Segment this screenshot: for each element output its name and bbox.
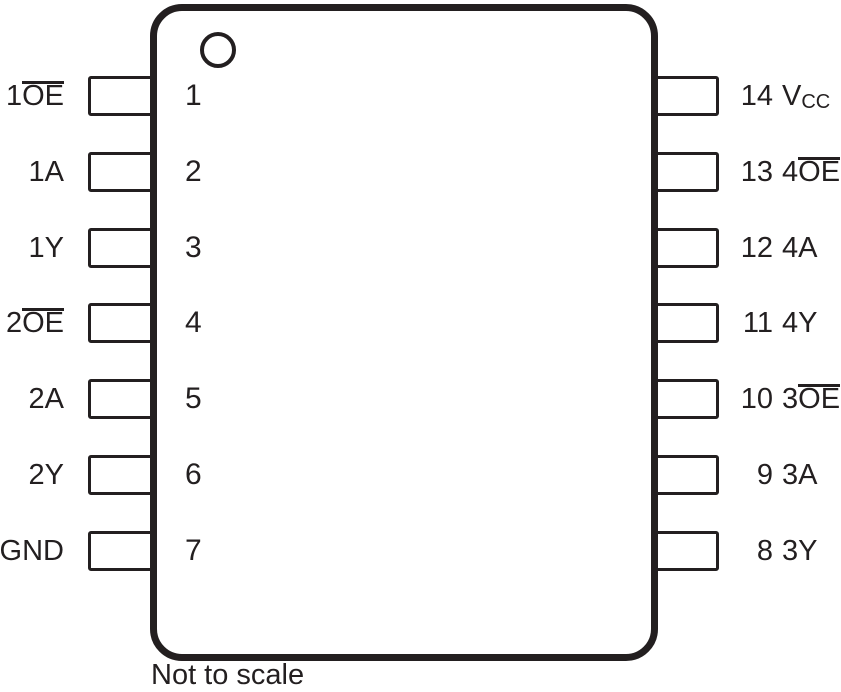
- pin-number-12: 12: [737, 228, 773, 268]
- pin-lead-11: [653, 303, 719, 343]
- pin-name-2oe: 2OE: [0, 303, 64, 343]
- pin-number-14: 14: [737, 76, 773, 116]
- pin-name-3y: 3Y: [782, 535, 817, 567]
- pin-name-overline: OE: [798, 156, 840, 188]
- pin-name-base: 4Y: [782, 307, 817, 339]
- pin-number-8: 8: [737, 531, 773, 571]
- pin-name-overline: OE: [22, 307, 64, 339]
- pin-name-1a: 1A: [0, 152, 64, 192]
- pin-lead-10: [653, 379, 719, 419]
- pin-name-4oe: 4OE: [782, 156, 840, 188]
- pin-label-8-3y: 83Y: [737, 531, 817, 571]
- pin-number-11: 11: [737, 303, 773, 343]
- pin-name-subscript: CC: [801, 91, 830, 113]
- pin-number-4: 4: [185, 303, 202, 343]
- pin-name-overline: OE: [22, 80, 64, 112]
- pin-lead-6: [88, 455, 153, 495]
- pin-name-base: 4A: [782, 232, 817, 264]
- pin-name-base: V: [782, 80, 801, 112]
- pin-name-base: 2: [6, 307, 22, 339]
- pin-lead-14: [653, 76, 719, 116]
- pin-lead-4: [88, 303, 153, 343]
- pin-lead-13: [653, 152, 719, 192]
- pin-name-base: 3A: [782, 459, 817, 491]
- pin-label-12-4a: 124A: [737, 228, 817, 268]
- pin-name-1y: 1Y: [0, 228, 64, 268]
- pin-name-base: 2Y: [29, 459, 64, 491]
- pin-lead-9: [653, 455, 719, 495]
- pin-name-base: 2A: [29, 383, 64, 415]
- pin-name-base: 3Y: [782, 535, 817, 567]
- pin-name-overline: OE: [798, 383, 840, 415]
- pin-lead-3: [88, 228, 153, 268]
- pin-number-5: 5: [185, 379, 202, 419]
- pin-number-10: 10: [737, 379, 773, 419]
- chip-body: [150, 4, 658, 661]
- pin-name-base: 1: [6, 80, 22, 112]
- pin-name-base: 3: [782, 383, 798, 415]
- pin-name-base: 4: [782, 156, 798, 188]
- pin1-indicator-icon: [200, 32, 236, 68]
- pin-label-9-3a: 93A: [737, 455, 817, 495]
- pinout-diagram: 1OE 1 14VCC 1A 2 134OE 1Y 3 124A 2OE 4 1…: [0, 0, 841, 691]
- pin-name-gnd: GND: [0, 531, 64, 571]
- pin-name-base: 1A: [29, 156, 64, 188]
- pin-name-base: 1Y: [29, 232, 64, 264]
- pin-number-2: 2: [185, 152, 202, 192]
- pin-label-10-3oe: 103OE: [737, 379, 840, 419]
- pin-label-13-4oe: 134OE: [737, 152, 840, 192]
- pin-lead-7: [88, 531, 153, 571]
- pin-number-6: 6: [185, 455, 202, 495]
- pin-number-9: 9: [737, 455, 773, 495]
- pin-lead-8: [653, 531, 719, 571]
- pin-name-3oe: 3OE: [782, 383, 840, 415]
- pin-name-2y: 2Y: [0, 455, 64, 495]
- pin-name-vcc: VCC: [782, 80, 830, 112]
- pin-name-3a: 3A: [782, 459, 817, 491]
- pin-name-2a: 2A: [0, 379, 64, 419]
- pin-name-1oe: 1OE: [0, 76, 64, 116]
- scale-note: Not to scale: [151, 659, 304, 692]
- pin-name-4y: 4Y: [782, 307, 817, 339]
- pin-label-11-4y: 114Y: [737, 303, 817, 343]
- pin-lead-1: [88, 76, 153, 116]
- pin-number-7: 7: [185, 531, 202, 571]
- pin-name-base: GND: [0, 535, 64, 567]
- pin-number-1: 1: [185, 76, 202, 116]
- pin-lead-2: [88, 152, 153, 192]
- pin-lead-5: [88, 379, 153, 419]
- pin-lead-12: [653, 228, 719, 268]
- pin-label-14-vcc: 14VCC: [737, 76, 830, 116]
- pin-number-13: 13: [737, 152, 773, 192]
- pin-number-3: 3: [185, 228, 202, 268]
- pin-name-4a: 4A: [782, 232, 817, 264]
